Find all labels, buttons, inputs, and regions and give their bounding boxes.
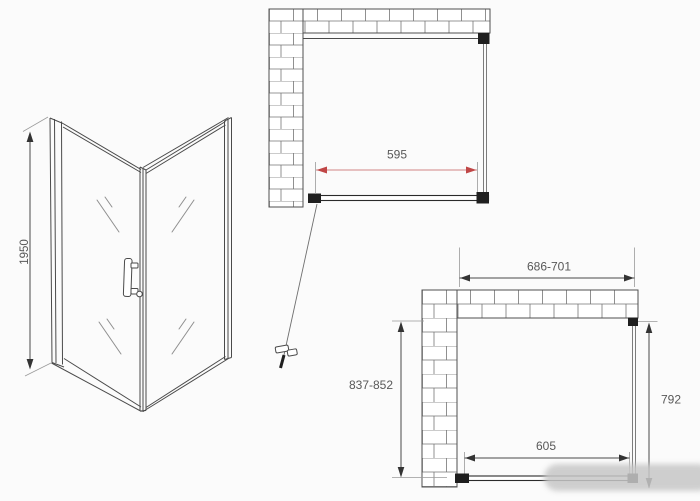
panel-depth-dimension-label: 792 (661, 393, 681, 407)
height-dimension: 1950 (19, 117, 51, 376)
perspective-view: 1950 (19, 117, 232, 412)
panel-depth-dimension: 792 (638, 322, 681, 489)
plan-view-installation: 686-701 837-852 792 605 (349, 248, 700, 492)
brick-wall-left (269, 9, 303, 207)
side-panel-plan (478, 33, 490, 195)
brick-wall-left (422, 290, 457, 487)
shower-enclosure-drawing: 1950 (0, 0, 700, 501)
watermark-smudge (544, 464, 700, 491)
height-dimension-label: 1950 (19, 239, 31, 265)
door-width-dimension: 595 (316, 148, 478, 195)
open-door-end (281, 355, 285, 368)
technical-drawing-canvas: 1950 (0, 0, 700, 501)
door-handle (123, 258, 142, 296)
wall-profile-bracket (628, 318, 638, 327)
wall-height-dimension-label: 837-852 (349, 378, 393, 392)
door-closed-plan (308, 192, 489, 204)
outer-width-dimension-label: 686-701 (527, 260, 571, 274)
swing-line (284, 204, 317, 355)
arrow-down-icon (27, 359, 34, 370)
side-panel-3d (143, 118, 232, 412)
door-width-dimension-label: 595 (387, 148, 407, 162)
outer-width-dimension: 686-701 (460, 248, 635, 288)
arrow-left-icon (317, 167, 328, 174)
door-open-swing (275, 204, 317, 368)
open-door-handle (287, 349, 297, 357)
door-width-dimension-label: 605 (536, 439, 556, 453)
arrow-right-icon (466, 167, 477, 174)
arrow-up-icon (27, 132, 34, 143)
corner-post (140, 167, 146, 412)
wall-profile-bracket (478, 33, 490, 44)
